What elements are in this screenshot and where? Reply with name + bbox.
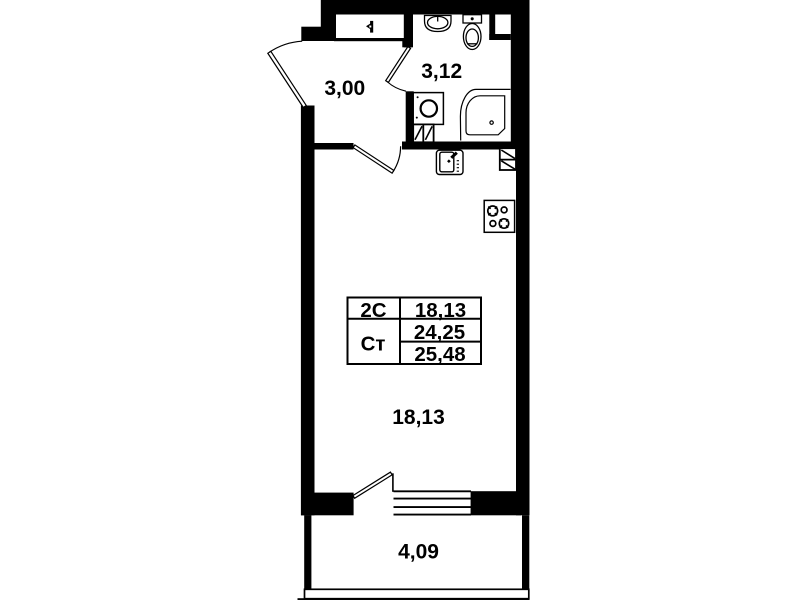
svg-text:3,00: 3,00 [324,77,365,100]
svg-text:24,25: 24,25 [414,321,465,344]
svg-text:Ст: Ст [361,333,386,356]
svg-text:18,13: 18,13 [415,299,466,322]
svg-text:18,13: 18,13 [392,406,445,429]
svg-text:4,09: 4,09 [398,541,439,564]
svg-text:3,12: 3,12 [421,60,462,83]
svg-text:2С: 2С [360,299,386,322]
svg-text:25,48: 25,48 [414,343,465,366]
